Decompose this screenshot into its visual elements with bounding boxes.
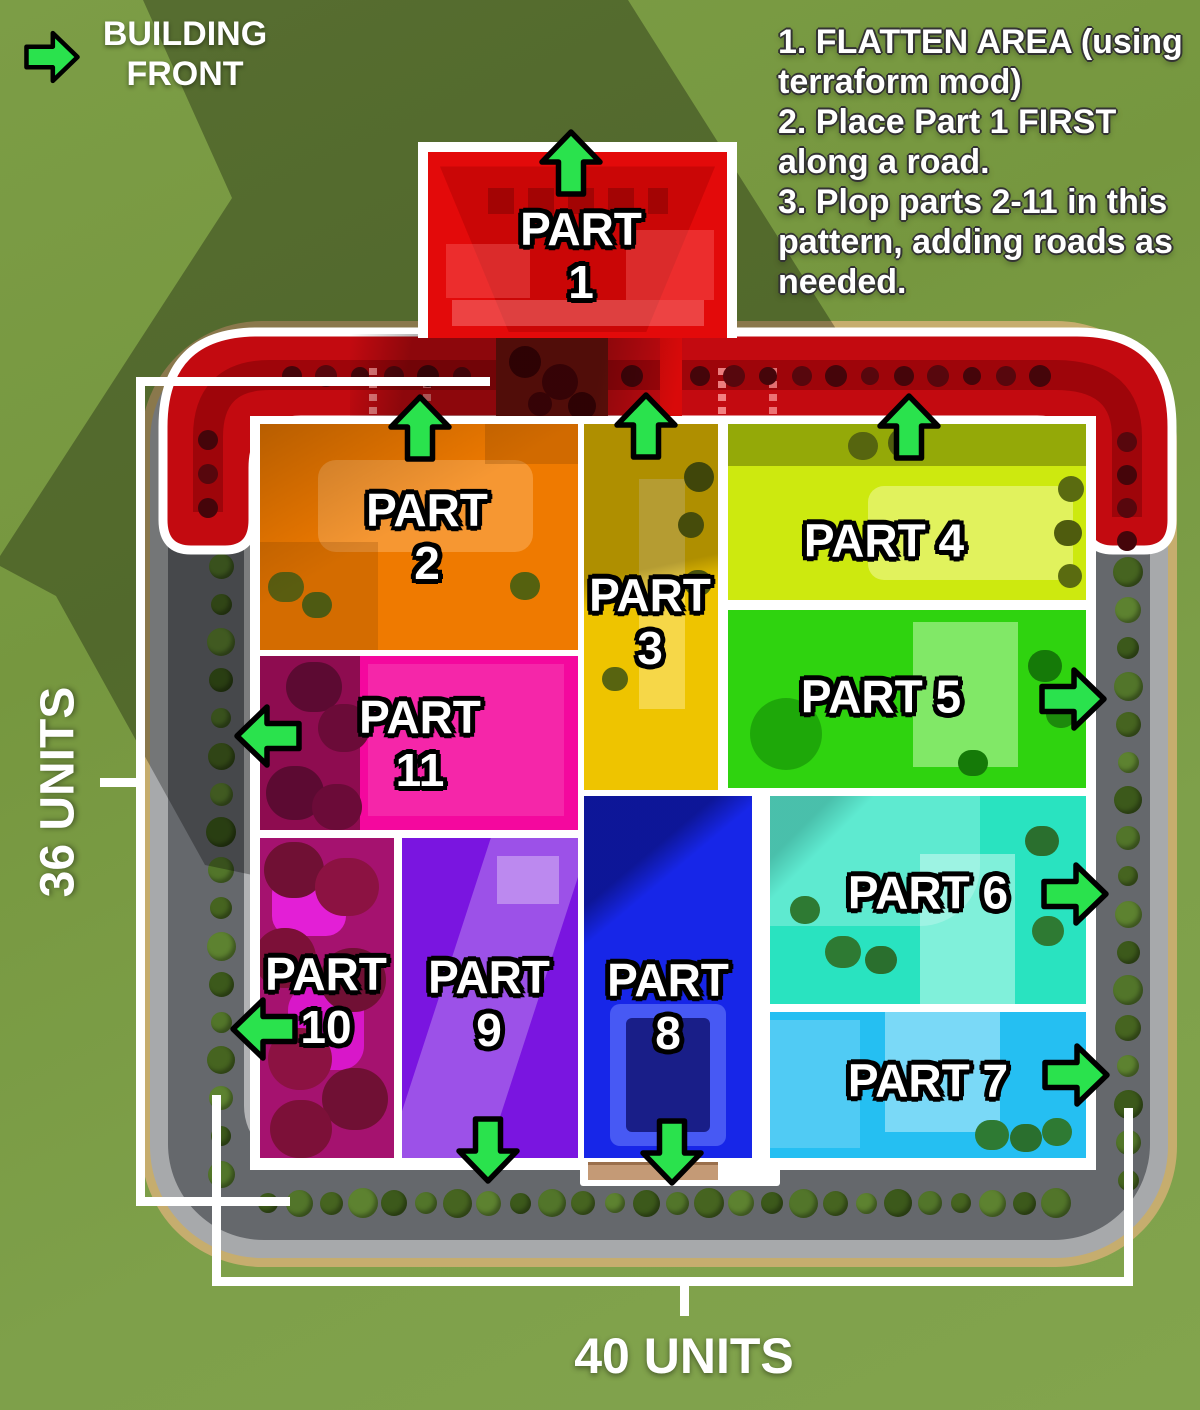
- red-tree-dot: [996, 366, 1016, 386]
- tree-dot: [207, 932, 236, 961]
- part-label-3: PART3: [589, 569, 711, 675]
- part-label-1: PART1: [520, 203, 642, 309]
- building-hint: [312, 784, 362, 830]
- building-hint: [1058, 476, 1084, 502]
- part-4-front-up-arrow-icon: [877, 393, 941, 461]
- tree-dot: [211, 1012, 232, 1033]
- building-front-label-line2: FRONT: [95, 54, 275, 94]
- tree-dot: [210, 783, 233, 806]
- tree-dot: [207, 628, 235, 656]
- part-label-6: PART 6: [848, 867, 1008, 920]
- building-front-label: BUILDING FRONT: [95, 14, 275, 94]
- building-hint: [446, 244, 530, 298]
- tree-dot: [951, 1193, 971, 1213]
- instruction-line: along a road.: [778, 142, 1198, 182]
- tree-dot: [823, 1191, 848, 1216]
- part-label-text: PART: [428, 951, 550, 1004]
- width-bracket-right-tick: [1124, 1108, 1133, 1285]
- part-label-text: PART: [366, 484, 488, 537]
- tree-dot: [1117, 637, 1139, 659]
- red-tree-dot: [198, 498, 218, 518]
- tree-dot: [1013, 1192, 1036, 1215]
- red-tree-dot: [198, 464, 218, 484]
- tree-dot: [789, 1189, 818, 1218]
- tree-dot: [1118, 752, 1139, 773]
- instruction-line: pattern, adding roads as: [778, 222, 1198, 262]
- red-tree-dot: [1029, 365, 1051, 387]
- tree-dot: [884, 1189, 912, 1217]
- tree-dot: [1114, 786, 1142, 814]
- building-front-label-line1: BUILDING: [95, 14, 275, 54]
- building-hint: [497, 856, 559, 904]
- tree-dot: [1113, 975, 1143, 1005]
- building-hint: [958, 750, 988, 776]
- red-tree-dot: [198, 430, 218, 450]
- red-tree-dot: [759, 367, 777, 385]
- red-tree-dot: [792, 366, 812, 386]
- red-tree-dot: [963, 367, 981, 385]
- tree-dot: [761, 1192, 783, 1214]
- red-tree-dot: [723, 365, 745, 387]
- width-bracket-line: [212, 1277, 1133, 1286]
- part-2-front-up-arrow-icon: [388, 394, 452, 462]
- part-number: 3: [589, 622, 711, 675]
- tree-dot: [1116, 712, 1141, 737]
- width-bracket-mid-tick: [680, 1286, 689, 1316]
- tree-dot: [538, 1189, 566, 1217]
- tree-dot: [979, 1190, 1006, 1217]
- building-hint: [1010, 1124, 1042, 1152]
- red-tree-dot: [894, 366, 914, 386]
- tree-dot: [1115, 901, 1142, 928]
- part-9-front-down-arrow-icon: [456, 1116, 520, 1184]
- tree-dot: [209, 668, 233, 692]
- tree-dot: [1115, 1015, 1141, 1041]
- tree-dot: [694, 1188, 724, 1218]
- tree-dot: [1115, 597, 1141, 623]
- site-plan-scene: 36 UNITS 40 UNITS BUILDING FRONT 1. FLAT…: [0, 0, 1200, 1410]
- tree-dot: [666, 1192, 689, 1215]
- building-hint: [975, 1120, 1009, 1150]
- building-hint: [848, 432, 878, 460]
- building-hint: [1058, 564, 1082, 588]
- tree-dot: [1117, 1055, 1139, 1077]
- red-tree-dot: [1117, 465, 1137, 485]
- part-1-front-up-arrow-icon: [539, 129, 603, 197]
- red-tree-dot: [927, 365, 949, 387]
- tree-dot: [605, 1193, 625, 1213]
- instruction-line: 2. Place Part 1 FIRST: [778, 102, 1198, 142]
- part-label-8: PART8: [607, 954, 729, 1060]
- tree-dot: [728, 1190, 754, 1216]
- part-5-front-right-arrow-icon: [1039, 667, 1107, 731]
- tree-dot: [348, 1188, 378, 1218]
- tree-dot: [856, 1193, 877, 1214]
- tree-dot: [208, 857, 234, 883]
- width-bracket-left-tick: [212, 1095, 221, 1285]
- part-label-9: PART9: [428, 951, 550, 1057]
- height-bracket-line: [136, 377, 145, 1206]
- red-tree-dot: [690, 366, 710, 386]
- instruction-line: 1. FLATTEN AREA (using: [778, 22, 1198, 62]
- instruction-line: terraform mod): [778, 62, 1198, 102]
- red-tree-dot: [861, 367, 879, 385]
- red-tree-dot: [1117, 432, 1137, 452]
- tree-dot: [211, 594, 232, 615]
- dimension-width-label: 40 UNITS: [574, 1327, 794, 1385]
- tree-dot: [206, 817, 236, 847]
- part-label-text: PART: [607, 954, 729, 1007]
- part-6-front-right-arrow-icon: [1041, 862, 1109, 926]
- part-number: 9: [428, 1004, 550, 1057]
- part-label-7: PART 7: [848, 1055, 1008, 1108]
- building-hint: [1042, 1118, 1072, 1146]
- building-hint: [1054, 520, 1082, 546]
- instruction-line: needed.: [778, 262, 1198, 302]
- tree-dot: [571, 1191, 595, 1215]
- tree-dot: [476, 1191, 501, 1216]
- building-hint: [315, 858, 379, 916]
- part-10-front-left-arrow-icon: [230, 997, 298, 1061]
- part-7-front-right-arrow-icon: [1042, 1043, 1110, 1107]
- part-label-text: PART: [520, 203, 642, 256]
- part-number: 1: [520, 256, 642, 309]
- tree-dot: [320, 1192, 343, 1215]
- tree-dot: [633, 1190, 660, 1217]
- tree-dot: [211, 708, 231, 728]
- part-label-4: PART 4: [804, 515, 964, 568]
- tree-dot: [1041, 1188, 1071, 1218]
- tree-dot: [208, 743, 235, 770]
- part-label-2: PART2: [366, 484, 488, 590]
- tree-dot: [415, 1192, 437, 1214]
- dimension-height-label: 36 UNITS: [31, 687, 86, 898]
- tree-dot: [1118, 866, 1138, 886]
- part-label-text: PART: [359, 691, 481, 744]
- part-11-front-left-arrow-icon: [234, 704, 302, 768]
- tree-dot: [443, 1189, 472, 1218]
- building-front-legend-arrow-icon: [24, 26, 80, 88]
- height-bracket-mid-tick: [100, 778, 145, 787]
- building-hint: [322, 1068, 388, 1130]
- part-number: 11: [359, 744, 481, 797]
- red-tree-dot: [1117, 498, 1137, 518]
- part-number: 8: [607, 1007, 729, 1060]
- height-bracket-top-tick: [136, 377, 490, 386]
- red-tree-dot: [825, 365, 847, 387]
- building-hint: [770, 1020, 860, 1148]
- tree-dot: [918, 1191, 942, 1215]
- part-label-5: PART 5: [801, 671, 961, 724]
- part-label-text: PART: [589, 569, 711, 622]
- building-hint: [270, 1100, 332, 1158]
- tree-dot: [510, 1193, 531, 1214]
- instruction-line: 3. Plop parts 2-11 in this: [778, 182, 1198, 222]
- tree-dot: [1114, 672, 1143, 701]
- tree-dot: [1117, 941, 1140, 964]
- tree-dot: [209, 972, 234, 997]
- part-number: 2: [366, 537, 488, 590]
- tree-dot: [210, 897, 232, 919]
- part-8-front-down-arrow-icon: [640, 1118, 704, 1186]
- tree-dot: [381, 1190, 407, 1216]
- part-label-text: PART: [265, 948, 387, 1001]
- tree-dot: [286, 1190, 313, 1217]
- part-label-11: PART11: [359, 691, 481, 797]
- tree-dot: [1116, 826, 1140, 850]
- instructions-text: 1. FLATTEN AREA (usingterraform mod)2. P…: [778, 22, 1198, 302]
- red-tree-dot: [1117, 531, 1137, 551]
- part-3-front-up-arrow-icon: [614, 392, 678, 460]
